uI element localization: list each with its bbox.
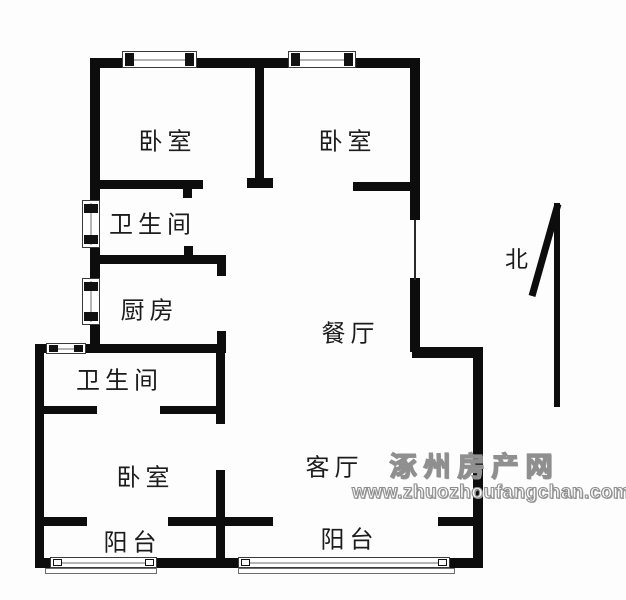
balcony-divider-wall [168, 517, 273, 526]
room-label-dining: 餐厅 [317, 314, 380, 349]
balcony2-sill [238, 568, 455, 574]
bedroom2-south-wall [353, 182, 412, 191]
north-label: 北 [505, 240, 528, 274]
balcony2-window [238, 557, 450, 568]
kitchen-northeast-corner [217, 264, 226, 276]
right-wall-window-line [414, 220, 416, 280]
right-upper-wall-bottom [410, 278, 420, 352]
balcony1-sill [45, 568, 157, 574]
bathroom2-south-wall-left [44, 406, 97, 414]
bathroom2-top-window [46, 343, 86, 354]
room-label-balcony-1: 阳台 [99, 523, 162, 558]
floorplan-canvas: 北 涿州房产网 www.zhuozhoufangchan.com 卧室卧室卫生间… [0, 0, 626, 600]
room-label-bedroom-2: 卧室 [314, 122, 377, 157]
right-upper-wall-top [410, 58, 420, 220]
kitchen-left-window [82, 278, 100, 325]
bedroom-divider-wall [255, 68, 264, 180]
bedroom1-south-wall [100, 180, 203, 189]
left-lower-exterior-wall [35, 344, 44, 568]
room-label-bathroom-2: 卫生间 [71, 361, 163, 396]
north-arrow-icon [495, 195, 575, 415]
bedroom-divider-cap [247, 178, 273, 188]
bedroom1-door-jamb [183, 189, 192, 198]
bathroom1-door-jamb [184, 246, 193, 255]
right-lower-exterior-wall [473, 350, 483, 568]
bottom-middle-wall [157, 558, 238, 568]
bottom-left-corner-wall [35, 558, 50, 568]
bedroom2-top-window [288, 51, 356, 68]
bathroom1-left-window [82, 200, 100, 248]
room-label-bedroom-1: 卧室 [134, 122, 197, 157]
room-label-bathroom-1: 卫生间 [104, 205, 196, 240]
room-label-balcony-2: 阳台 [316, 520, 379, 555]
balcony1-window [50, 557, 157, 568]
bathroom2-south-wall-right [160, 406, 225, 414]
room-label-kitchen: 厨房 [116, 291, 179, 326]
kitchen-north-wall [100, 255, 226, 264]
bedroom1-top-window [122, 51, 197, 68]
room-label-bedroom-3: 卧室 [112, 458, 175, 493]
kitchen-east-wall [217, 331, 226, 344]
living-south-wall [438, 517, 473, 526]
right-jut-wall [412, 347, 483, 358]
room-label-living: 客厅 [301, 448, 364, 483]
compass: 北 [495, 195, 575, 415]
bedroom3-south-wall [44, 517, 87, 526]
